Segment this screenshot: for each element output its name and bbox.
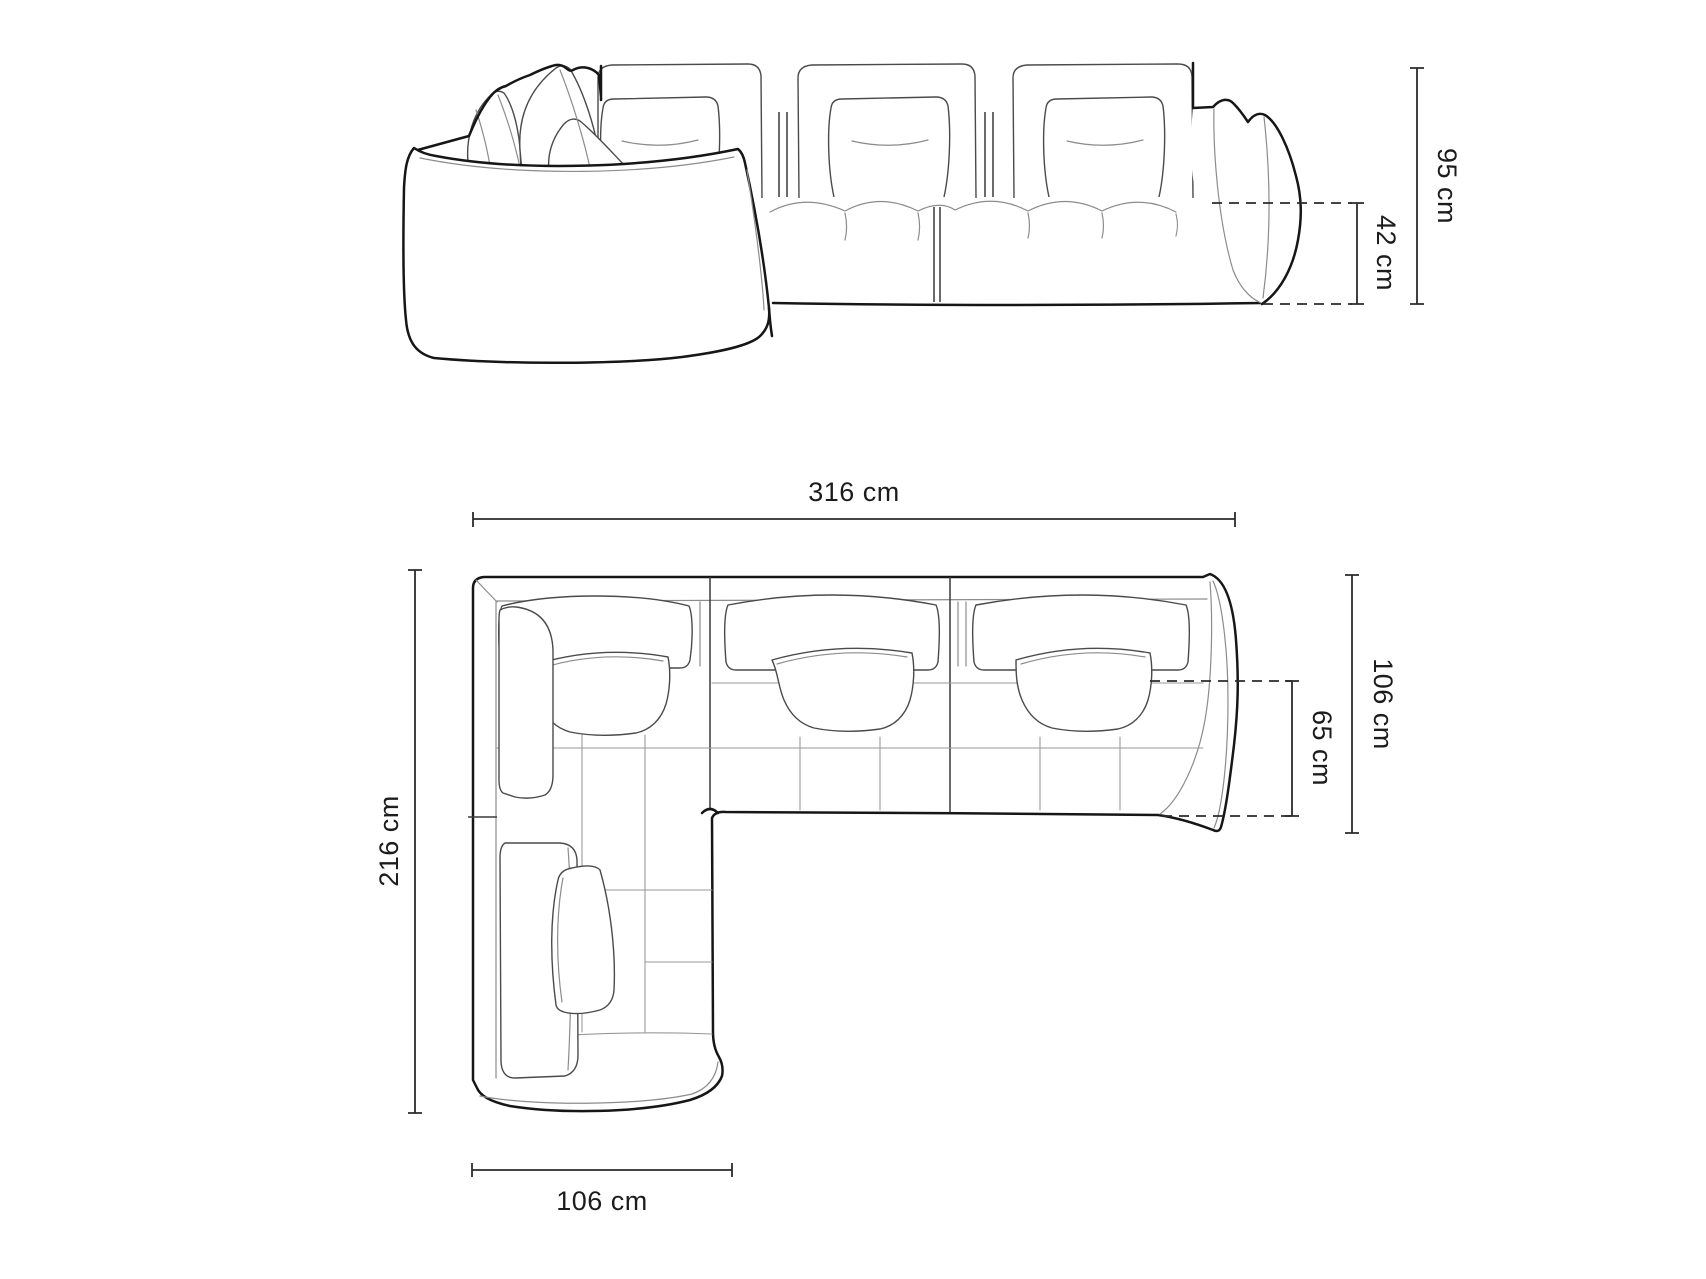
total-depth-dim-line	[1345, 575, 1359, 833]
total-height-dim-line	[1410, 68, 1424, 304]
dim-label-total-height: 95 cm	[1432, 148, 1462, 224]
sofa-dimension-diagram-page: 42 cm 95 cm	[0, 0, 1706, 1279]
seat-height-dim-line	[1350, 203, 1364, 304]
plan-seat-cushions	[535, 648, 1152, 735]
plan-sofa-drawing	[468, 574, 1238, 1111]
dim-label-total-depth: 106 cm	[1368, 658, 1398, 750]
corner-arm-face	[403, 148, 769, 363]
dim-label-total-width: 316 cm	[808, 477, 900, 507]
seat-bottom-edge	[773, 303, 1262, 305]
chaise-width-dim-line	[472, 1163, 732, 1177]
dim-label-seat-height: 42 cm	[1371, 215, 1401, 291]
right-arm-cushion	[1191, 63, 1301, 304]
top-plan-view: 316 cm 216 cm 65 cm 106 cm 106 cm	[374, 477, 1398, 1216]
left-corner-arm	[403, 148, 772, 363]
seat-module-divider	[934, 207, 940, 302]
front-sofa-drawing	[403, 63, 1300, 363]
back-pillow-2	[829, 97, 950, 197]
total-width-dim-line	[473, 512, 1235, 527]
corner-back-side-cushion	[499, 607, 553, 798]
corner-arm-side-tip	[769, 308, 772, 336]
dim-label-total-length: 216 cm	[374, 795, 404, 887]
front-elevation-view: 42 cm 95 cm	[403, 63, 1461, 363]
dim-label-chaise-width: 106 cm	[556, 1186, 648, 1216]
seat-depth-dim-line	[1285, 681, 1299, 816]
back-pillow-3	[1044, 97, 1165, 197]
dim-label-seat-depth: 65 cm	[1307, 710, 1337, 786]
total-length-dim-line	[408, 570, 422, 1113]
seat-cushions-front	[770, 201, 1262, 305]
right-arm-fill	[1191, 100, 1301, 304]
plan-seat-cushion-3	[1016, 648, 1152, 731]
seat-tuft-creases	[845, 213, 1178, 240]
seat-scallops	[770, 201, 1176, 212]
sofa-dimension-diagram: 42 cm 95 cm	[0, 0, 1706, 1279]
